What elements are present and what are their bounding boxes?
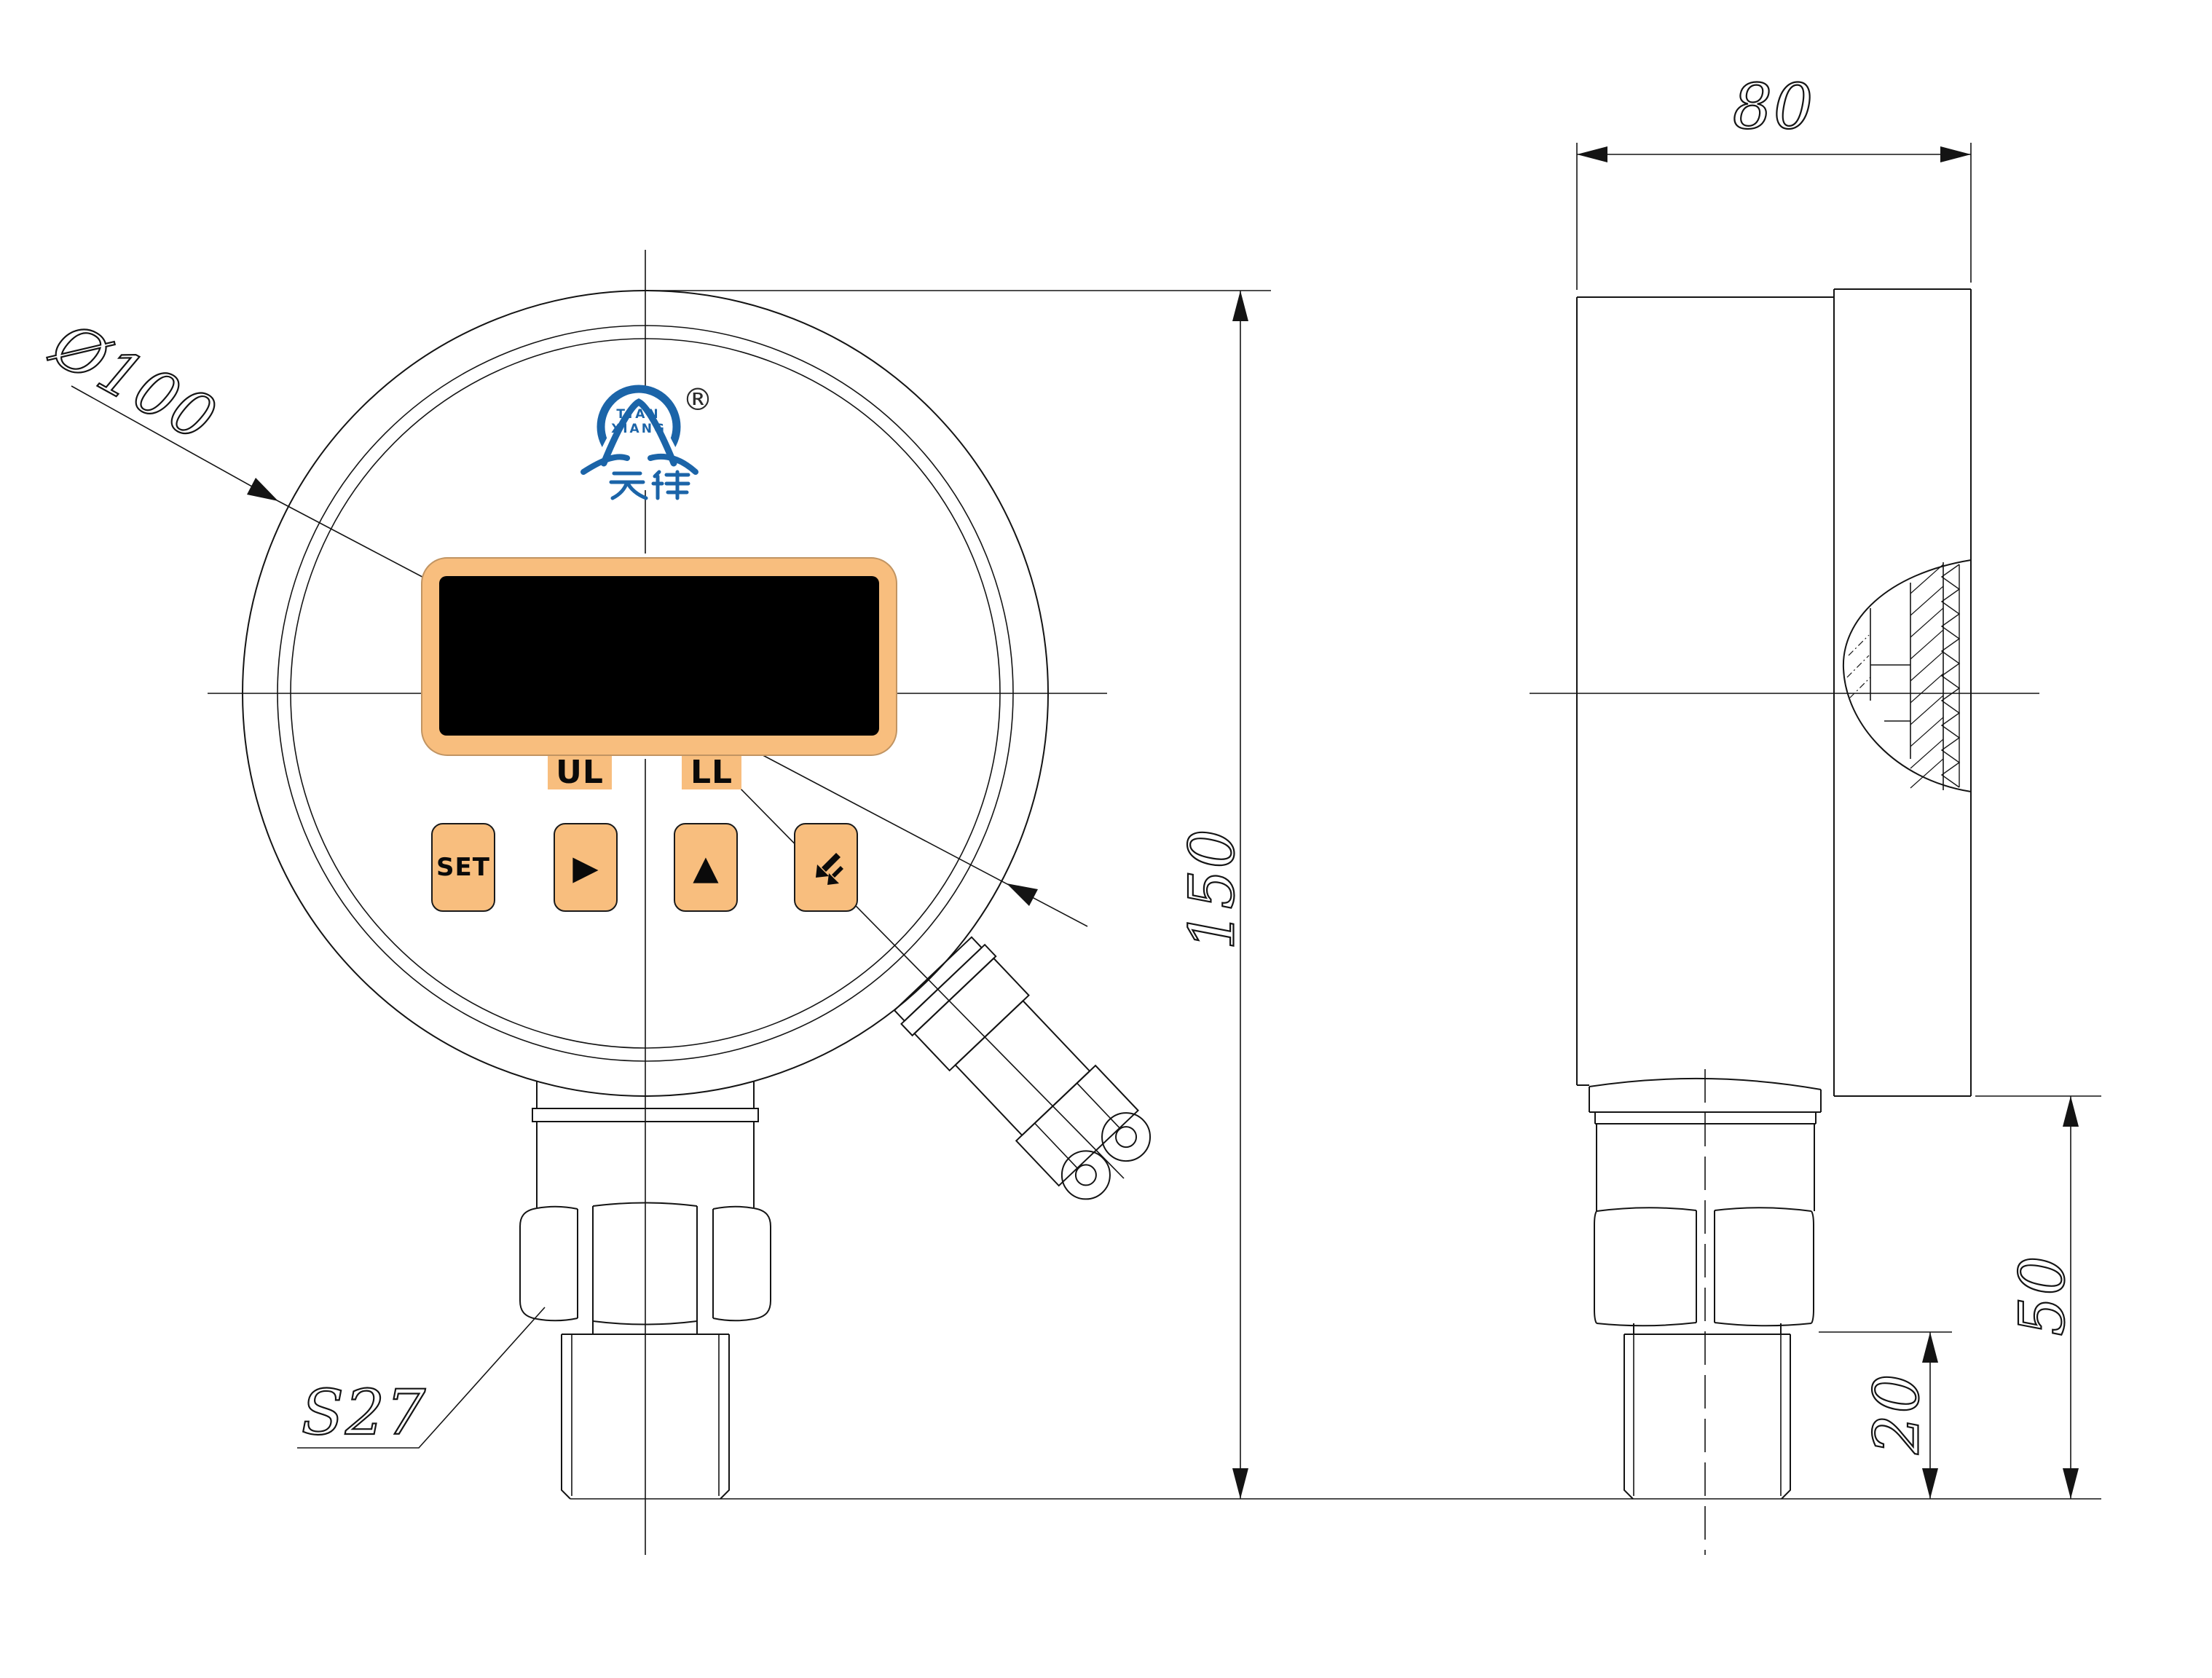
dim-thread-length: 20 [1867,1363,1929,1465]
lcd-screen [439,576,879,736]
enter-button [794,823,858,912]
dim-hex-size: S27 [295,1382,433,1444]
lcd-bezel [421,557,897,756]
brand-logo: TIAN XIANG ® [579,380,714,500]
up-arrow-icon: ▲ [693,851,718,884]
sensor-dome [1843,560,1971,792]
dimension-80 [1577,143,1971,290]
brand-cjk-glyphs [611,472,688,498]
dim-overall-height: 150 [1182,820,1244,958]
enter-arrows-icon [807,848,845,886]
upper-limit-label: UL [548,756,612,789]
dim-case-depth: 80 [1712,76,1835,138]
up-arrow-button: ▲ [674,823,738,912]
side-view [1530,289,2039,1555]
dim-stem-height: 50 [2012,1245,2074,1347]
lower-limit-label: LL [682,756,741,789]
right-arrow-icon: ▶ [572,851,598,884]
right-arrow-button: ▶ [554,823,618,912]
gauge-technical-drawing: TIAN XIANG ® UL LL SET ▶ ▲ [0,0,2212,1678]
logo-line1: TIAN [616,407,661,422]
logo-line2: XIANG [611,422,666,436]
set-button: SET [431,823,495,912]
cable-gland [690,737,1165,1213]
registered-mark: ® [682,382,713,417]
set-button-label: SET [436,853,490,882]
